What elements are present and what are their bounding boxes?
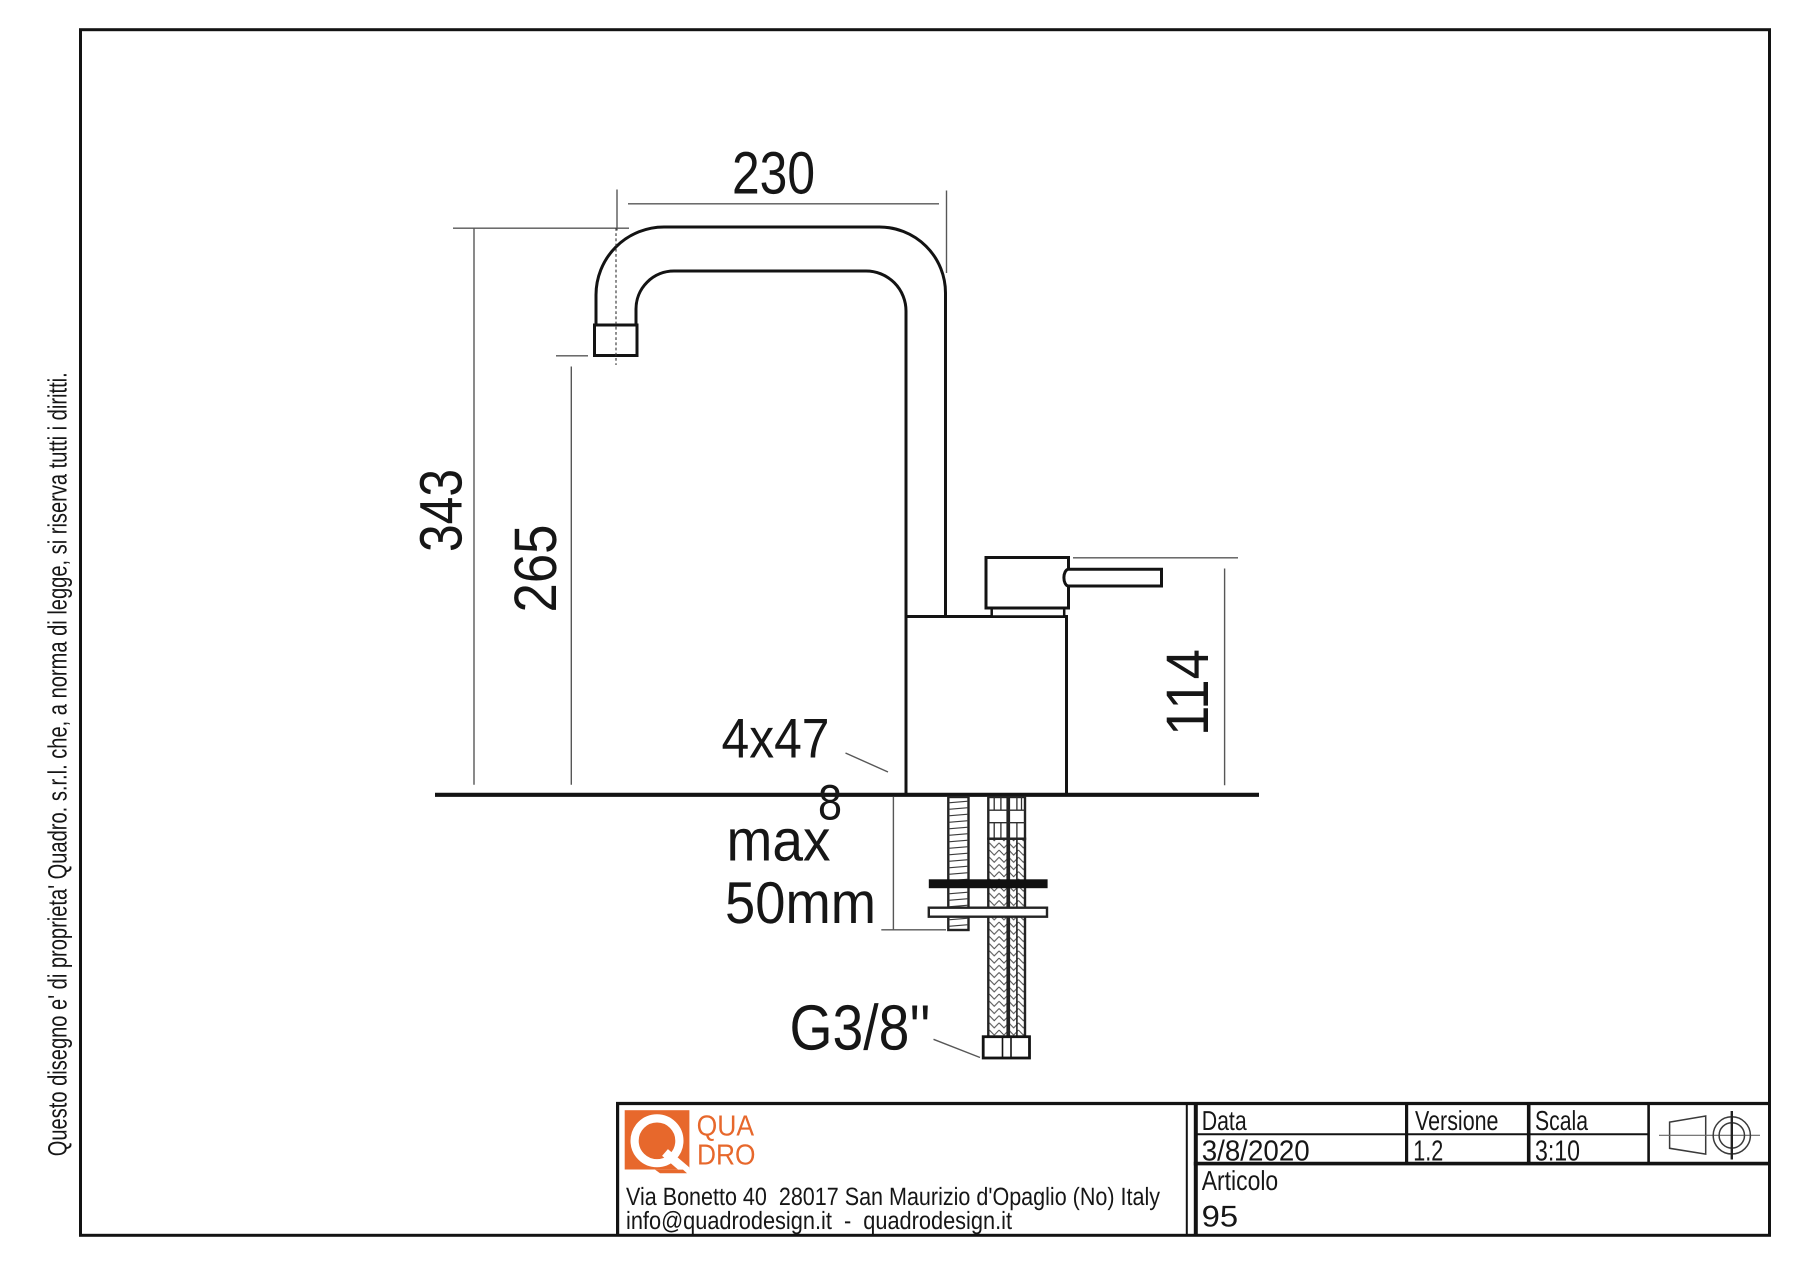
svg-text:265: 265: [502, 525, 569, 613]
svg-text:Data: Data: [1202, 1105, 1248, 1136]
svg-text:3:10: 3:10: [1535, 1136, 1580, 1168]
svg-text:343: 343: [408, 469, 475, 552]
svg-text:max: max: [727, 808, 831, 874]
svg-text:1.2: 1.2: [1413, 1135, 1443, 1167]
svg-text:info@quadrodesign.it - quadr: info@quadrodesign.it - quadrodesign.it: [626, 1207, 1012, 1235]
svg-text:DRO: DRO: [697, 1140, 756, 1172]
svg-text:230: 230: [732, 140, 815, 207]
svg-text:Questo disegno e' di proprieta: Questo disegno e' di proprieta' Quadro. …: [43, 372, 73, 1156]
svg-text:50mm: 50mm: [725, 870, 876, 936]
svg-text:QUA: QUA: [697, 1111, 755, 1143]
svg-text:Versione: Versione: [1415, 1105, 1499, 1136]
svg-text:95: 95: [1202, 1201, 1239, 1234]
svg-text:G3/8'': G3/8'': [790, 992, 931, 1064]
svg-text:3/8/2020: 3/8/2020: [1202, 1135, 1310, 1167]
svg-text:Scala: Scala: [1535, 1105, 1589, 1136]
svg-text:114: 114: [1154, 649, 1221, 736]
svg-text:4x47: 4x47: [722, 706, 830, 769]
svg-text:Articolo: Articolo: [1202, 1165, 1279, 1196]
